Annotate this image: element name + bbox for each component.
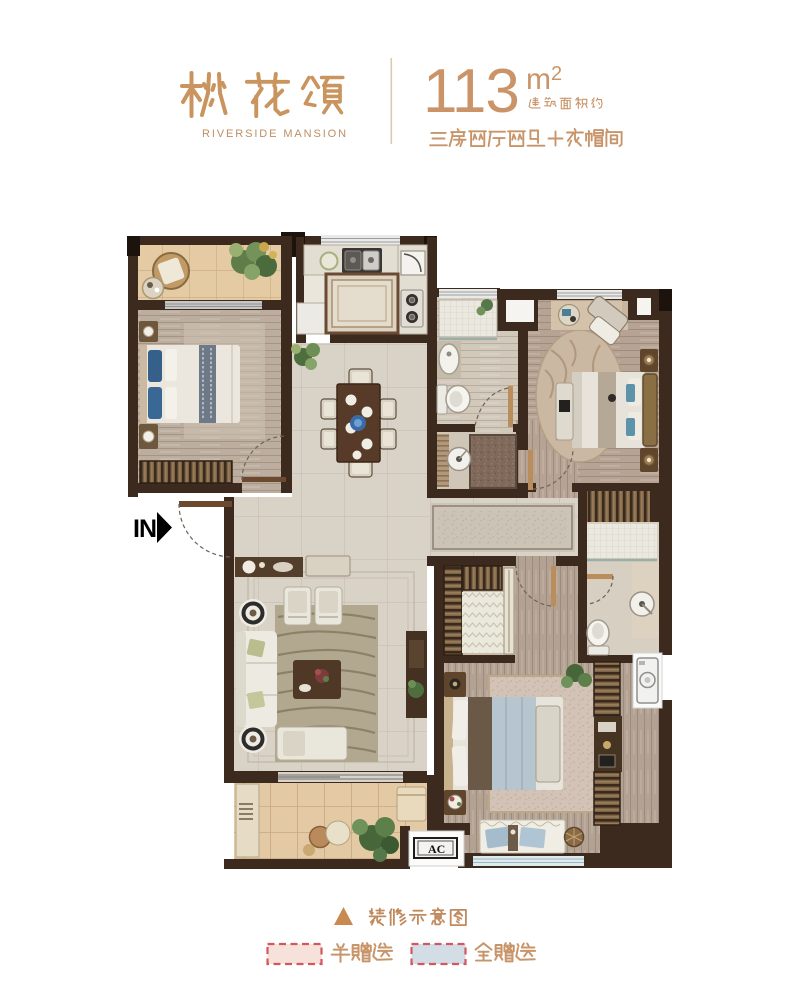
svg-text:IN: IN — [133, 515, 156, 543]
svg-text:RIVERSIDE MANSION: RIVERSIDE MANSION — [202, 128, 348, 140]
svg-text:113: 113 — [423, 57, 519, 126]
svg-text:2: 2 — [551, 63, 562, 85]
svg-text:AC: AC — [428, 842, 445, 856]
svg-text:m: m — [526, 63, 551, 96]
